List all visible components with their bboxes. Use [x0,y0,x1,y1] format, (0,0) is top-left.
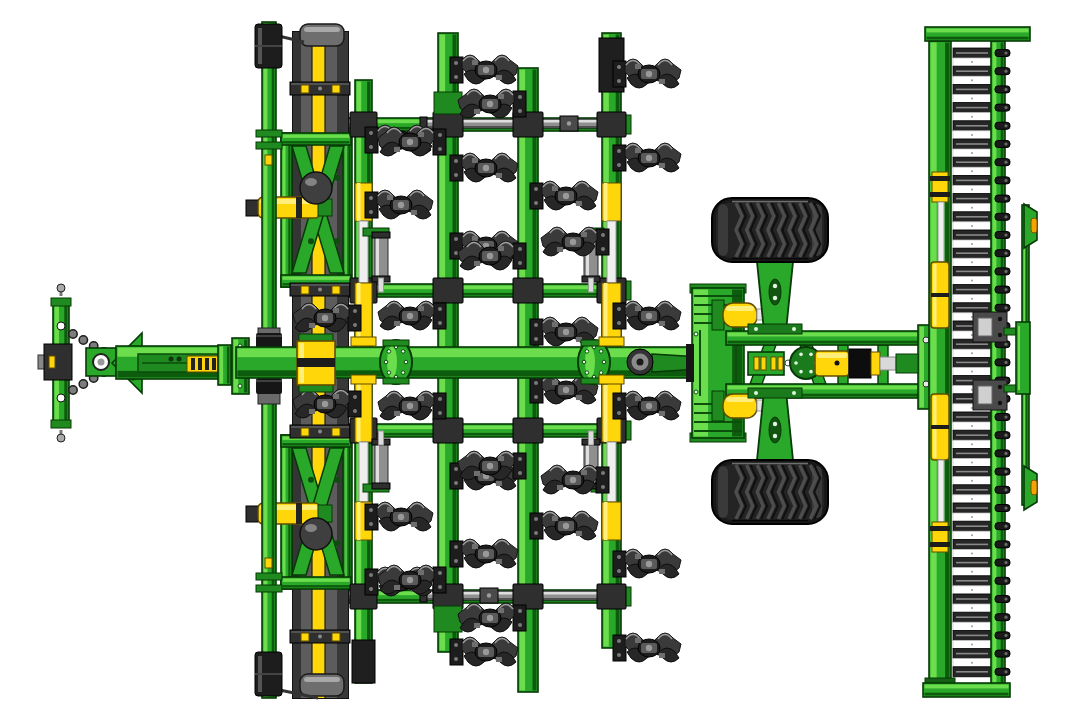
tine-assembly [378,391,446,420]
tine-assembly [365,502,433,531]
tine-assembly [450,539,518,568]
tine-assembly [458,451,526,480]
tine-assembly [450,637,518,666]
tine-assembly [613,59,681,88]
tine-assembly [613,549,681,578]
tine-assembly [458,603,526,632]
tine-assembly [530,181,598,210]
tine-assembly [530,511,598,540]
tine-assembly [613,301,681,330]
tire [712,198,828,262]
tine-assembly [458,89,526,118]
rear-bar-roller [923,27,1030,697]
tine-assembly [613,143,681,172]
tine-assembly [613,633,681,662]
tine-assembly [613,391,681,420]
transport-frame [686,262,934,460]
cad-viewport [0,0,1080,720]
tine-assembly [450,153,518,182]
tine-assembly [450,55,518,84]
tire [712,460,828,524]
tine-assembly [541,227,609,256]
tine-assembly [378,301,446,330]
cultivator-top-view-diagram [0,0,1080,720]
tine-assembly [365,190,433,219]
tine-assembly [541,465,609,494]
